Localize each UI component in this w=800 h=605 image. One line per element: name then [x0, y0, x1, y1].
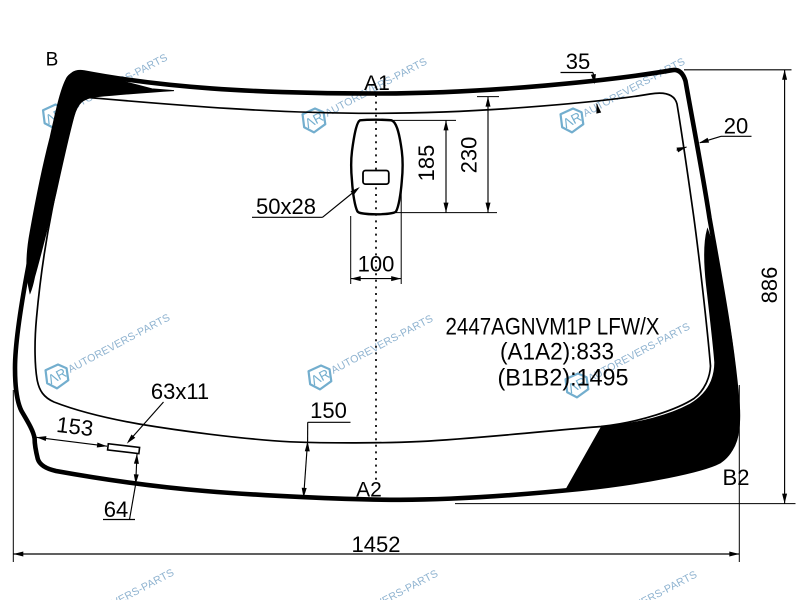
svg-text:150: 150	[310, 398, 347, 423]
svg-text:50x28: 50x28	[256, 194, 316, 219]
svg-text:(B1B2):1495: (B1B2):1495	[498, 365, 629, 392]
svg-text:B: B	[46, 50, 59, 71]
svg-text:886: 886	[757, 267, 782, 304]
svg-text:20: 20	[724, 114, 748, 139]
svg-text:230: 230	[457, 137, 482, 174]
svg-text:A2: A2	[356, 479, 382, 502]
svg-text:64: 64	[104, 497, 128, 522]
svg-text:35: 35	[566, 49, 590, 74]
svg-text:1452: 1452	[352, 532, 401, 557]
svg-text:63x11: 63x11	[151, 379, 209, 404]
svg-text:B2: B2	[723, 465, 750, 490]
svg-text:A1: A1	[364, 72, 390, 95]
svg-text:185: 185	[414, 145, 439, 182]
svg-text:(A1A2):833: (A1A2):833	[500, 339, 614, 366]
svg-text:100: 100	[358, 252, 395, 277]
svg-text:2447AGNVM1P LFW/X: 2447AGNVM1P LFW/X	[446, 314, 660, 341]
svg-text:153: 153	[55, 412, 94, 441]
